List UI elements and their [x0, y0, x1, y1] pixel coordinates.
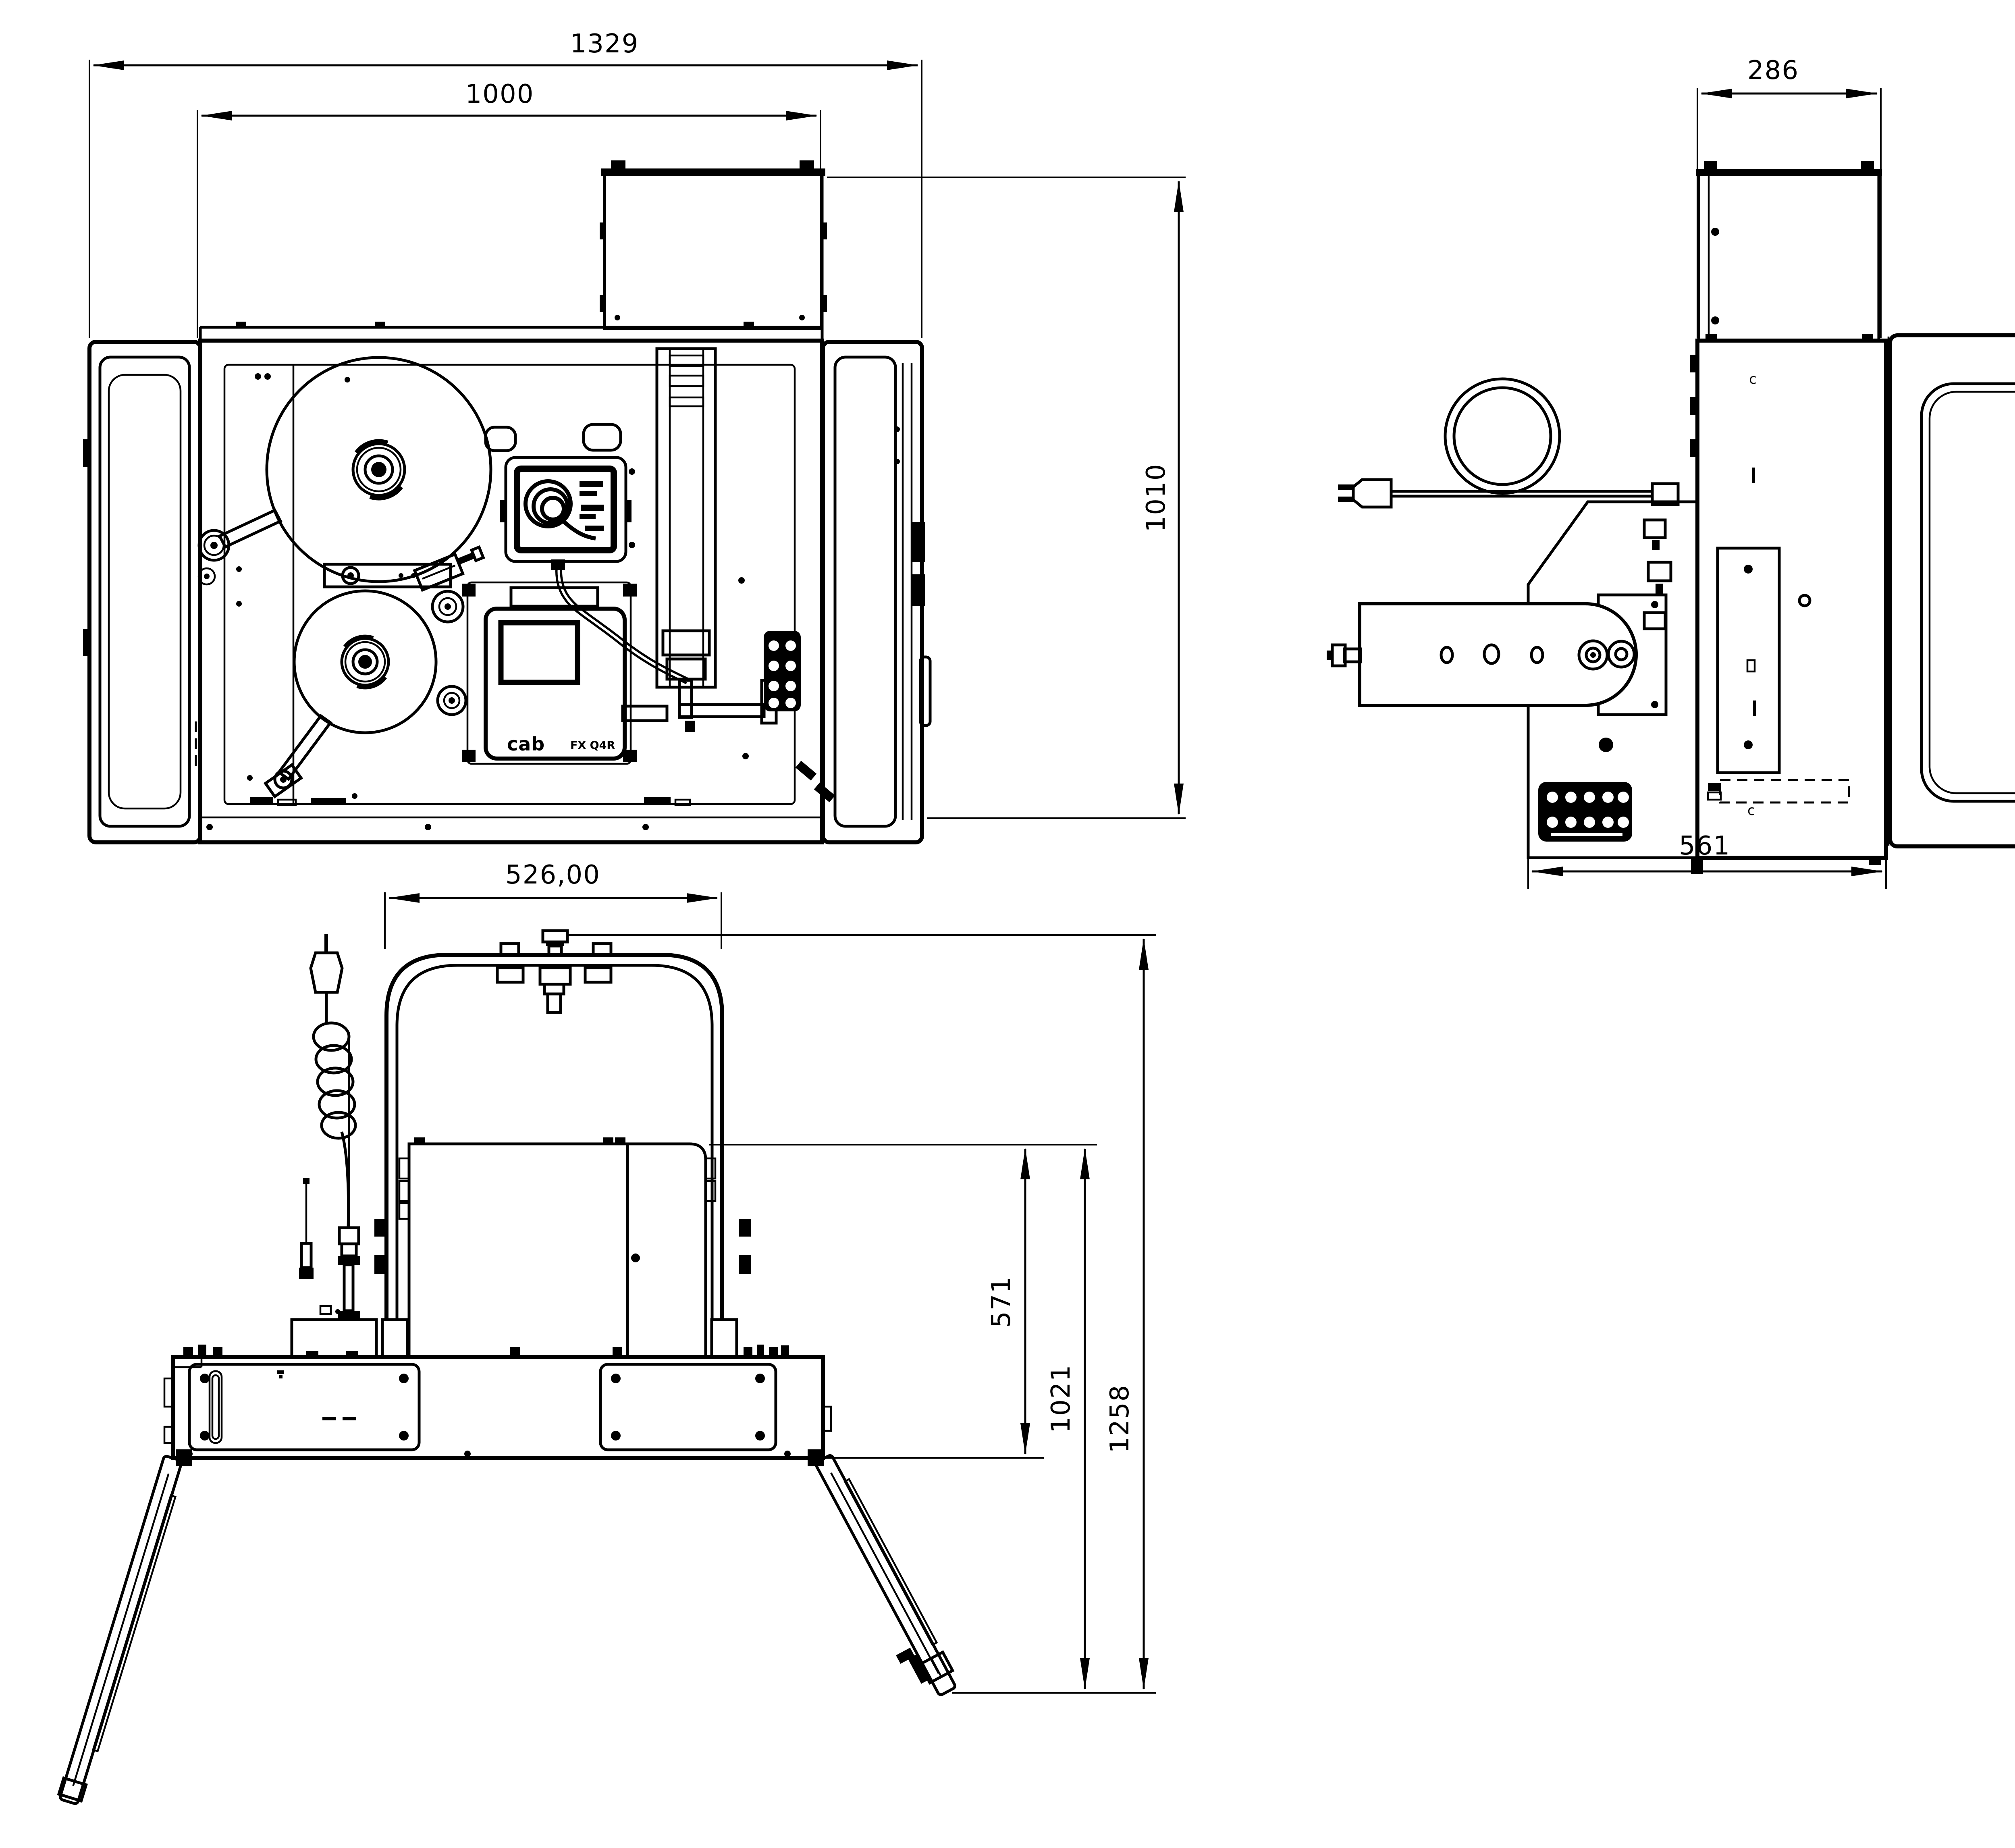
plug-icon	[1338, 480, 1391, 507]
side-connector-grille	[1538, 782, 1632, 842]
front-extension-lines	[567, 935, 1156, 1693]
front-printer-body	[409, 1137, 706, 1357]
dimension-plan-depth: 1010	[827, 177, 1186, 818]
front-view: 526,00 571 1021 1258	[58, 860, 1156, 1806]
plan-connector-block	[764, 631, 801, 711]
dim-label-1010: 1010	[1141, 464, 1171, 532]
front-left-door	[58, 1455, 186, 1806]
side-door	[1890, 335, 2015, 846]
plan-view: 1329 1000 1010	[83, 29, 1186, 842]
dimension-side-top-width: 286	[1697, 56, 1881, 338]
dim-label-1000: 1000	[465, 79, 534, 109]
dim-label-1021: 1021	[1046, 1364, 1076, 1433]
plan-right-door	[823, 342, 930, 842]
dimension-front-printer-height: 571	[987, 1149, 1025, 1454]
dim-label-526: 526,00	[505, 860, 600, 890]
side-fittings	[1644, 484, 1678, 629]
plan-guide-rollers	[432, 591, 466, 715]
plan-applicator-rail	[623, 349, 776, 732]
plan-body-top-strip	[200, 322, 822, 341]
dimension-front-mid-height: 1021	[1046, 1149, 1085, 1689]
dim-label-1329: 1329	[570, 29, 639, 59]
plan-operator-panel	[500, 457, 635, 561]
front-power-cord	[292, 934, 376, 1357]
dimension-front-total-height: 1258	[1105, 939, 1144, 1689]
mark-c-top: c	[1749, 371, 1757, 387]
side-applicator-arm	[1327, 595, 1666, 715]
dimension-plan-overall-width: 1329	[89, 29, 922, 338]
plan-supply-reel	[267, 358, 491, 582]
side-view: 286 1012 561	[1327, 56, 2015, 889]
dim-label-571: 571	[987, 1276, 1016, 1328]
dim-label-286: 286	[1747, 56, 1799, 85]
plan-printer-unit: cab FX Q4R	[462, 582, 637, 764]
arm-end-bolt	[1327, 645, 1361, 666]
printer-model-label: FX Q4R	[570, 739, 615, 752]
panel-label-text	[580, 481, 604, 531]
dimension-plan-inner-width: 1000	[197, 79, 821, 338]
technical-drawing-page: 1329 1000 1010	[0, 0, 2015, 1848]
mark-c-bottom: c	[1747, 802, 1755, 819]
plan-top-box	[600, 160, 827, 328]
front-bracket-bolts	[497, 931, 611, 1012]
front-base-box	[164, 1345, 831, 1466]
drawing-canvas: 1329 1000 1010	[0, 0, 2015, 1848]
plan-dancer-arm-upper	[199, 510, 280, 560]
front-right-panel	[600, 1364, 776, 1450]
side-main-body: c c	[1690, 337, 1888, 874]
front-left-panel	[189, 1364, 419, 1450]
side-top-box	[1696, 161, 1882, 341]
front-right-door	[798, 1452, 960, 1705]
cab-logo: cab	[507, 733, 545, 755]
plan-left-door	[83, 342, 200, 842]
front-bracket-frame	[374, 955, 751, 1357]
plan-reel-bracket	[324, 545, 486, 590]
side-power-cord	[1338, 379, 1652, 507]
plan-corner-pins	[796, 761, 835, 802]
plan-dancer-arm-lower	[266, 716, 330, 796]
dim-label-1258: 1258	[1105, 1384, 1135, 1453]
plan-rewind-reel	[294, 591, 436, 733]
